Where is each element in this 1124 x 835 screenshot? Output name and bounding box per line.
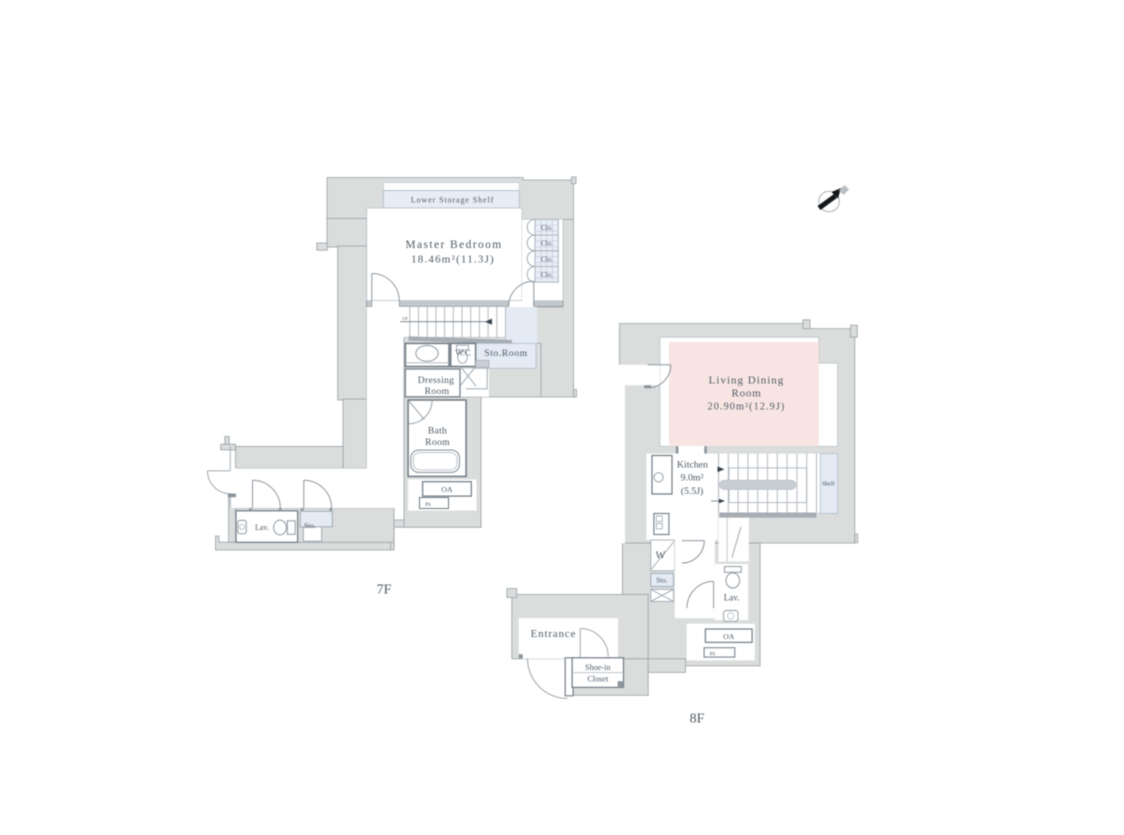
svg-text:OA: OA: [441, 485, 453, 494]
svg-text:Clo.: Clo.: [541, 224, 553, 232]
svg-text:Room: Room: [425, 386, 450, 397]
svg-text:Master Bedroom: Master Bedroom: [405, 239, 502, 251]
svg-text:Clo.: Clo.: [541, 255, 553, 263]
svg-text:Clo.: Clo.: [541, 271, 553, 279]
svg-text:Lav.: Lav.: [724, 592, 740, 602]
svg-text:7F: 7F: [377, 583, 392, 598]
svg-text:Lav.: Lav.: [255, 523, 269, 532]
svg-text:OA: OA: [723, 632, 735, 641]
svg-text:W: W: [655, 551, 665, 562]
svg-text:18.46m²(11.3J): 18.46m²(11.3J): [411, 254, 495, 266]
svg-text:(5.5J): (5.5J): [681, 486, 704, 497]
svg-text:Room: Room: [731, 388, 761, 400]
svg-text:Kitchen: Kitchen: [677, 459, 708, 470]
svg-text:Clo.: Clo.: [541, 240, 553, 248]
svg-text:Shelf: Shelf: [822, 480, 835, 487]
svg-text:20.90m²(12.9J): 20.90m²(12.9J): [708, 402, 786, 413]
svg-text:9.0m²: 9.0m²: [681, 473, 704, 484]
svg-text:W.C: W.C: [455, 348, 471, 358]
svg-text:Dressing: Dressing: [418, 375, 455, 386]
svg-text:Room: Room: [425, 437, 450, 448]
svg-text:PS: PS: [425, 503, 431, 508]
svg-text:Lower Storage Shelf: Lower Storage Shelf: [411, 195, 494, 204]
svg-text:Entrance: Entrance: [531, 628, 577, 640]
svg-text:Sto.: Sto.: [304, 521, 316, 530]
svg-text:Closet: Closet: [587, 674, 609, 683]
svg-text:Living Dining: Living Dining: [709, 374, 785, 386]
svg-text:Sto.: Sto.: [656, 576, 668, 584]
svg-text:Sto.Room: Sto.Room: [484, 348, 527, 359]
svg-text:Shoe-in: Shoe-in: [585, 663, 610, 672]
svg-text:UP: UP: [402, 316, 408, 321]
svg-text:8F: 8F: [690, 712, 705, 727]
svg-text:PS: PS: [710, 652, 716, 657]
svg-text:Bath: Bath: [428, 425, 447, 436]
